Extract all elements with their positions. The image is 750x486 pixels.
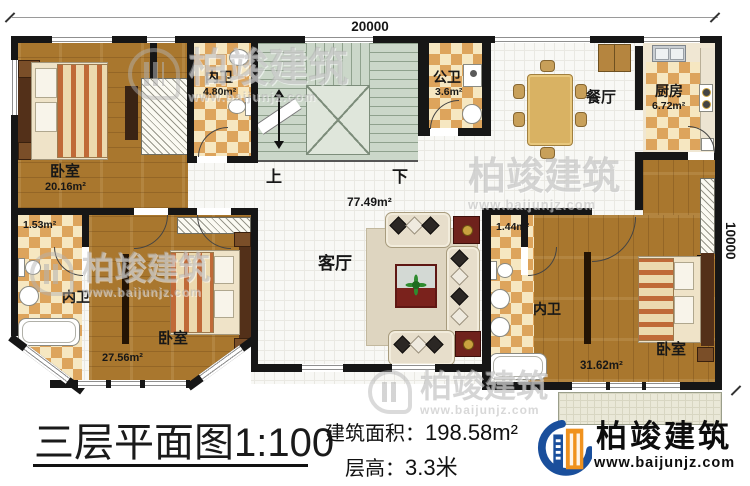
room-label: 内卫 [533,302,561,317]
nightstand [697,347,714,362]
stairs-up-label: 上 [266,170,282,187]
bathtub-inner [493,356,543,377]
stairs-arrow-down-icon [274,141,284,149]
dining-chair [513,112,525,127]
wall-stairs-left [251,43,258,163]
side-table-ornament [462,225,473,236]
wall-bath-ml [82,215,89,247]
stove-burner [702,88,711,97]
dining-chair [540,60,555,72]
round-sink [462,104,482,124]
wall-stairs-right [418,36,429,136]
wall-right [715,36,722,390]
side-table-ornament [463,339,474,350]
door-gap [430,128,458,136]
brand-logo-url: www.baijunjz.com [594,456,735,471]
nightstand [234,232,251,247]
stairs-edge-line [258,160,418,162]
room-label: 内卫 [205,70,233,85]
bed-pillow [214,290,234,318]
room-area: 3.6m² [435,87,462,98]
wall-living-left [251,208,258,372]
room-label: 卧室 [50,164,80,180]
toilet-bowl [497,263,513,278]
bedroom-bl-partition [122,254,129,344]
bay-window-mullion [106,380,111,388]
wall-stub-tl [150,43,157,78]
kitchen-sink-basin [655,48,669,60]
wardrobe-br [700,178,715,254]
window [392,364,435,372]
dining-chair [513,84,525,99]
floorplan-canvas: 卧室 20.16m² 内卫 4.80m² 公卫 3.6m² 餐厅 厨房 6.72… [0,0,750,486]
room-label: 公卫 [433,70,461,85]
bed-headboard [18,78,31,142]
wall-corridor-left [635,160,643,210]
toilet-bowl [25,260,41,275]
stairs-right-flight [370,43,418,160]
room-label: 卧室 [656,342,686,358]
window [644,36,700,43]
window [495,36,590,43]
room-area: 1.44m² [496,222,529,233]
window [147,36,175,43]
room-area: 6.72m² [652,101,685,112]
watermark-url: www.baijunjz.com [420,404,548,416]
dining-table [527,74,573,146]
wall-sink [229,49,249,66]
stairs-direction-line [278,96,280,142]
room-label: 餐厅 [586,90,616,106]
bed-headboard [239,247,251,338]
drawing-title: 三层平面图1:100 [34,410,334,468]
wall-public-bath-right [482,36,491,136]
window [11,60,18,115]
closet-tl [141,78,188,155]
bed-pillow [35,102,57,132]
bed-headboard [701,253,714,346]
floor-height-value: 3.3米 [405,455,458,480]
title-underline [33,464,308,467]
bed-blanket [57,64,108,158]
brand-logo-name: 柏竣建筑 [596,421,732,453]
vanity-faucet [470,70,477,77]
bathtub-inner [22,321,76,343]
sideboard-divider [614,45,615,71]
dining-chair [540,147,555,159]
bed-pillow [214,256,234,284]
room-area: 1.53m² [23,220,56,231]
round-sink [19,286,39,306]
door-gap [197,208,231,215]
stair-void [306,85,370,155]
room-area: 27.56m² [102,353,143,364]
drawing-title-text: 三层平面图 [34,421,234,465]
door-gap [197,156,227,163]
room-area: 31.62m² [580,361,623,373]
stairs-top-flight [306,43,370,85]
window [572,382,680,390]
wall-closet-bath [187,43,194,163]
dimension-tick [731,385,742,396]
watermark-bars-icon [382,382,398,402]
window [305,36,373,43]
room-area: 20.16m² [45,182,86,193]
round-sink [490,317,510,337]
dimension-top-label: 20000 [338,20,402,34]
toilet-tank [18,258,25,277]
floor-height-label: 层高： [345,458,405,480]
building-area-label: 建筑面积： [325,423,425,445]
dresser [125,86,138,140]
door-gap [82,247,89,275]
bed-pillow [674,296,694,324]
door-gap [134,208,168,215]
round-sink [490,289,510,309]
room-area: 77.49m² [347,196,392,208]
stairs-arrow-up-icon [274,89,284,97]
door-gap [521,247,528,275]
stove-burner [702,100,711,109]
room-label: 客厅 [318,255,352,273]
brand-logo-icon [534,418,592,478]
bed-pillow [35,68,57,98]
bed-pillow [674,262,694,290]
bed-blanket [170,252,214,333]
drawing-scale: 1:100 [234,421,334,465]
room-label: 卧室 [158,331,188,347]
bed-blanket [638,258,674,341]
window [302,364,343,372]
plant-icon [405,274,427,296]
dimension-right-label: 10000 [723,222,737,260]
bay-window [78,380,186,388]
wall-sep-right [482,208,592,215]
kitchen-sink-basin [670,48,684,60]
wall-bottom-living [251,364,490,372]
toilet-bowl [228,99,246,114]
window-mullion [642,382,646,390]
bedroom-br-partition [584,252,591,344]
window-mullion [606,382,610,390]
room-label: 厨房 [655,84,683,99]
dining-chair [575,112,587,127]
building-area-value: 198.58m² [425,420,518,445]
bay-window-mullion [140,380,145,388]
stairs-down-label: 下 [392,170,408,187]
window [52,36,112,43]
door-gap [688,152,714,160]
wall-kitchen-left [635,46,643,110]
dimension-line-top [12,17,718,18]
building-area-line: 建筑面积：198.58m² [325,417,518,446]
room-label: 内卫 [62,290,90,305]
wall-living-right [482,208,491,390]
room-area: 4.80m² [203,87,236,98]
floor-height-line: 层高：3.3米 [345,450,458,482]
toilet-tank [490,261,497,280]
